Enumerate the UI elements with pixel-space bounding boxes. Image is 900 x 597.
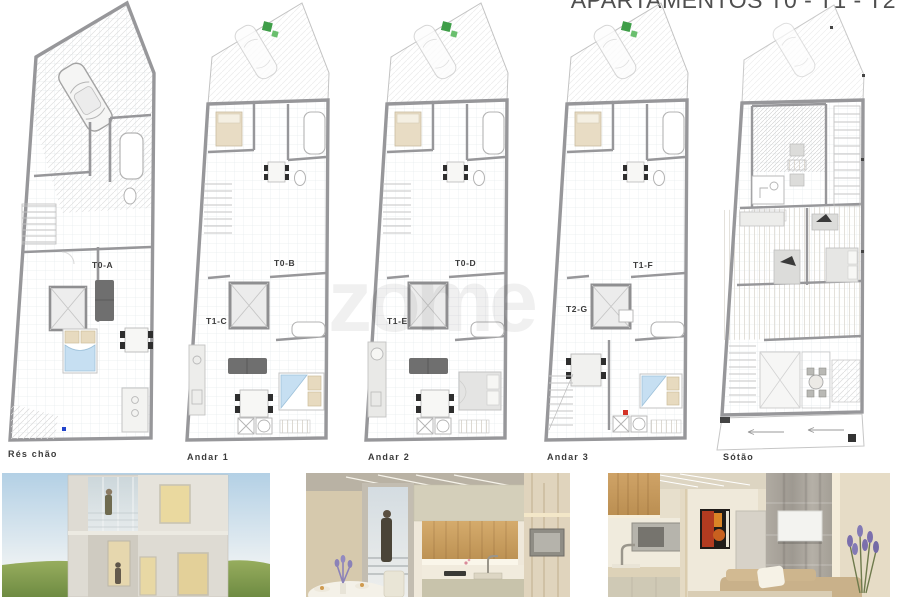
white-pillow — [757, 565, 786, 588]
bed-single-top — [575, 112, 601, 146]
bed-double-right — [826, 248, 858, 282]
balcony-grate — [459, 420, 489, 433]
bath-small — [752, 176, 784, 204]
roof-edge — [717, 414, 864, 450]
unit-label: T0-A — [92, 260, 113, 270]
sofa — [409, 358, 448, 374]
desk-chair-2 — [774, 250, 800, 284]
sink — [612, 564, 640, 568]
bed-double-blue — [279, 373, 324, 410]
elevator — [50, 287, 86, 330]
dining-table — [235, 390, 273, 417]
floor — [688, 591, 832, 597]
floor-label-sotao: Sótão — [723, 452, 754, 462]
void-x — [760, 352, 800, 408]
tall-column — [524, 473, 570, 597]
bed-double-gray — [459, 372, 501, 410]
bath-bottom — [292, 322, 325, 337]
sink — [474, 573, 502, 579]
sitting-area — [788, 144, 806, 186]
bed-left — [740, 212, 784, 226]
abstract-painting — [700, 509, 730, 549]
bed-double — [63, 329, 97, 373]
cooktop — [444, 571, 466, 576]
floor-label-andar-1: Andar 1 — [187, 452, 229, 462]
unit-label: T0-B — [274, 258, 295, 268]
floorplan-andar-3: T1-F T2-G — [539, 0, 701, 452]
window-lit-3 — [140, 557, 156, 595]
floor-label-andar-2: Andar 2 — [368, 452, 410, 462]
floorplan-sotao — [712, 0, 884, 456]
dining-table — [566, 354, 606, 386]
small-table-top — [623, 162, 648, 182]
building — [68, 475, 228, 597]
person-upper — [106, 489, 112, 495]
tv-screen — [778, 511, 822, 541]
door-marker-red — [623, 410, 628, 415]
door-marker-blue — [62, 427, 66, 431]
drawing-sheet: APARTAMENTOS T0 - T1 - T2 — [0, 0, 900, 597]
floor-label-res-chao: Rés chão — [8, 449, 58, 459]
dining-table — [120, 328, 153, 352]
bed-single-top — [395, 112, 421, 146]
dining-table — [416, 390, 454, 417]
floorplan-andar-1: T0-B T1-C — [180, 0, 342, 452]
kitchen-counter — [122, 388, 148, 432]
small-table-top — [443, 162, 468, 182]
unit-label: T1-F — [633, 260, 653, 270]
balcony-grate — [651, 420, 681, 433]
window-lit-2 — [178, 553, 208, 595]
sofa — [228, 358, 267, 374]
sofa — [95, 280, 114, 321]
window-lit-1 — [160, 485, 190, 523]
balcony-grate — [280, 420, 310, 433]
roof-hatch-2 — [832, 360, 860, 402]
terrace-table — [802, 352, 830, 408]
photo-kitchen-render — [306, 473, 570, 597]
kitchen-cabinets — [414, 485, 526, 597]
floor-label-andar-3: Andar 3 — [547, 452, 589, 462]
bed-double-blue — [640, 374, 682, 408]
unit-label: T1-C — [206, 316, 227, 326]
kitchen-left — [189, 345, 205, 415]
elevator — [230, 283, 268, 328]
person-lower — [115, 562, 121, 568]
floorplan-res-chao: T0-A — [0, 0, 168, 452]
small-table-top — [264, 162, 289, 182]
chair — [384, 571, 404, 597]
desk-chair-1 — [812, 214, 838, 230]
photo-exterior-facade-render — [2, 473, 270, 597]
bed-single-top — [216, 112, 242, 146]
photo-living-room-render — [608, 473, 890, 597]
zome-watermark: zome — [328, 250, 533, 352]
person — [383, 510, 391, 518]
unit-label: T2-G — [566, 304, 588, 314]
kitchen-left — [368, 342, 386, 417]
floorplan-andar-2: T0-D T1-E — [359, 0, 521, 452]
